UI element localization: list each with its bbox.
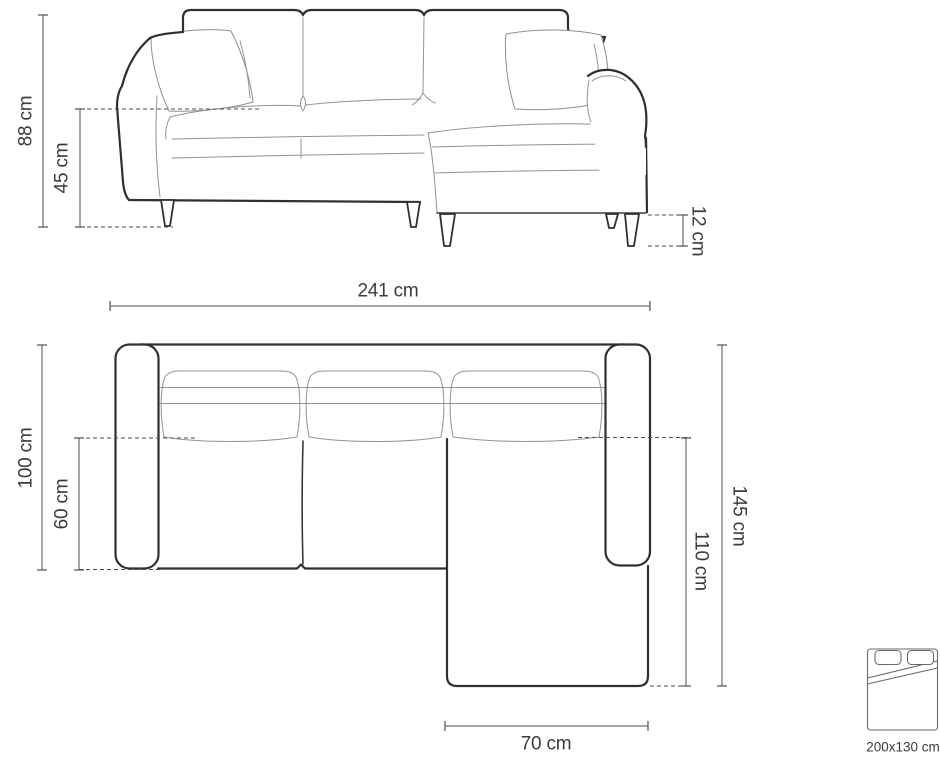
- bed-size-icon: 200x130 cm: [866, 649, 940, 755]
- seat-depth-label: 60 cm: [52, 479, 73, 530]
- back-cushion-seam-left: [301, 17, 306, 111]
- dim-chaise-width: 70 cm: [445, 721, 648, 755]
- top-back-cushion-3: [450, 371, 602, 442]
- seat-top-middle: [306, 99, 421, 105]
- top-back-cushion-2: [306, 371, 444, 442]
- diagram-canvas: 88 cm 45 cm 12 cm 241 cm: [0, 0, 940, 770]
- top-seat-division: [302, 441, 303, 564]
- chaise-width-label: 70 cm: [521, 734, 572, 755]
- back-cushion-seam-right: [412, 17, 435, 105]
- total-height-label: 88 cm: [16, 96, 37, 147]
- chaise-right-edge: [646, 138, 647, 212]
- dim-overall-width: 241 cm: [110, 281, 650, 312]
- bed-pillow-left: [875, 651, 901, 665]
- sofa-dimension-diagram: 88 cm 45 cm 12 cm 241 cm: [0, 0, 940, 770]
- bed-pillow-right: [908, 651, 934, 665]
- leg-height-label: 12 cm: [688, 206, 709, 257]
- left-throw-pillow: [151, 30, 253, 112]
- chaise-leg-back: [606, 214, 618, 228]
- sofa-leg-left: [161, 200, 174, 226]
- arm-inner-line: [156, 96, 160, 197]
- top-left-armrest: [116, 345, 159, 569]
- top-right-armrest: [606, 345, 651, 566]
- seat-left-edge: [166, 117, 170, 139]
- side-depth-label: 145 cm: [729, 485, 750, 546]
- top-view: 100 cm 60 cm 145 cm 110 cm: [16, 345, 750, 755]
- chaise-depth-label: 110 cm: [691, 531, 712, 591]
- dim-leg-height: 12 cm: [648, 206, 709, 257]
- dim-total-height: 88 cm: [16, 15, 49, 227]
- dim-total-depth: 100 cm: [16, 345, 48, 570]
- seat-front-seam-2: [172, 153, 424, 158]
- seat-height-label: 45 cm: [52, 143, 73, 194]
- bed-size-label: 200x130 cm: [866, 740, 940, 755]
- seat-front-seam-1: [172, 135, 424, 139]
- left-pillow-outline: [151, 30, 253, 112]
- overall-width-label: 241 cm: [357, 281, 418, 302]
- dim-side-depth: 145 cm: [717, 345, 750, 686]
- chaise-leg-right: [625, 214, 639, 246]
- top-back-cushion-1: [161, 371, 300, 442]
- chaise-leg-left: [440, 214, 455, 246]
- top-front-edge: [158, 565, 447, 569]
- front-view: 88 cm 45 cm 12 cm: [16, 10, 709, 256]
- total-depth-label: 100 cm: [16, 427, 37, 488]
- sofa-leg-mid: [407, 202, 420, 227]
